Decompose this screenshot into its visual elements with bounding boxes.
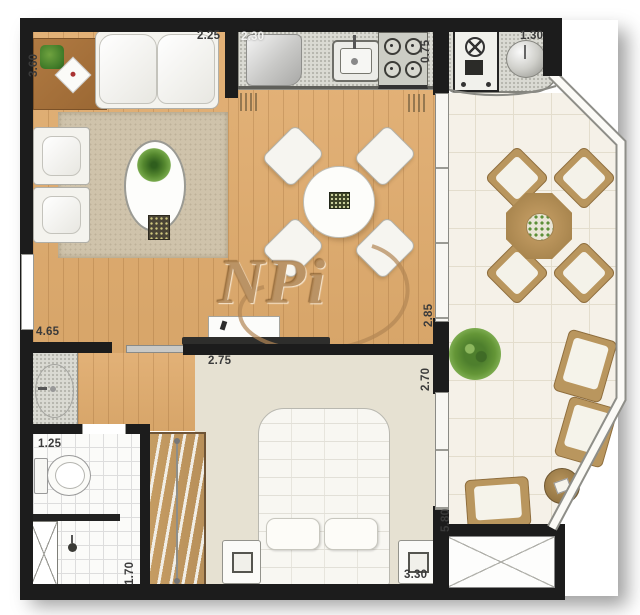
wall	[20, 18, 562, 32]
bedroom-window	[435, 392, 449, 510]
wall	[225, 18, 238, 98]
double-bed	[258, 408, 390, 586]
wall	[20, 342, 112, 353]
wardrobe	[148, 432, 206, 590]
washbasin	[35, 364, 74, 418]
armchair	[33, 187, 90, 243]
plant-icon	[40, 45, 64, 69]
bathroom-door	[82, 424, 126, 434]
watermark-logo: NPi	[218, 250, 438, 314]
pillow	[324, 518, 378, 550]
toilet	[47, 455, 91, 496]
wall	[183, 344, 437, 355]
shower-door	[30, 521, 58, 587]
table-tray	[148, 215, 170, 240]
terrace-centerpiece	[526, 213, 554, 241]
wall	[433, 18, 449, 95]
service-shaft	[447, 536, 555, 588]
pillow	[266, 518, 320, 550]
dimension-label: 2.75	[208, 355, 231, 367]
wall	[433, 318, 449, 394]
curtain-icon	[240, 93, 260, 111]
dimension-label: 4.65	[36, 326, 59, 338]
dimension-label: 5.80	[440, 509, 452, 532]
entry-door	[21, 254, 34, 330]
dimension-label: 2.70	[420, 368, 432, 391]
potted-plant	[449, 328, 501, 380]
dimension-label: 1.70	[124, 562, 136, 585]
terrace-armchair	[464, 476, 531, 530]
dimension-label: 1.25	[38, 438, 61, 450]
kitchen-sink	[332, 40, 380, 82]
dimension-label: 1.30	[520, 30, 543, 42]
shower-head-icon	[68, 543, 77, 552]
dimension-label: 3.60	[28, 54, 40, 77]
dimension-label: 2.25	[197, 30, 220, 42]
dimension-label: 3.30	[404, 569, 427, 581]
terrace-side-table	[544, 468, 580, 504]
round-sink	[506, 40, 546, 78]
shower-partition	[30, 514, 120, 521]
wall	[20, 424, 82, 434]
nightstand	[222, 540, 261, 584]
armchair	[33, 127, 90, 185]
dimension-label: 2.30	[241, 31, 264, 43]
wall	[543, 18, 562, 76]
sliding-door	[126, 345, 186, 353]
barbecue-grill	[453, 30, 499, 92]
toilet-tank	[34, 458, 48, 494]
wall	[140, 424, 150, 588]
floor-plan: 3.60 2.25 2.30 0.75 1.30 4.65 2.75 2.85 …	[0, 0, 640, 615]
centerpiece	[329, 192, 350, 209]
wall	[20, 584, 448, 600]
curtain-icon	[408, 94, 428, 112]
plant-icon	[137, 148, 171, 182]
dimension-label: 0.75	[420, 40, 432, 63]
